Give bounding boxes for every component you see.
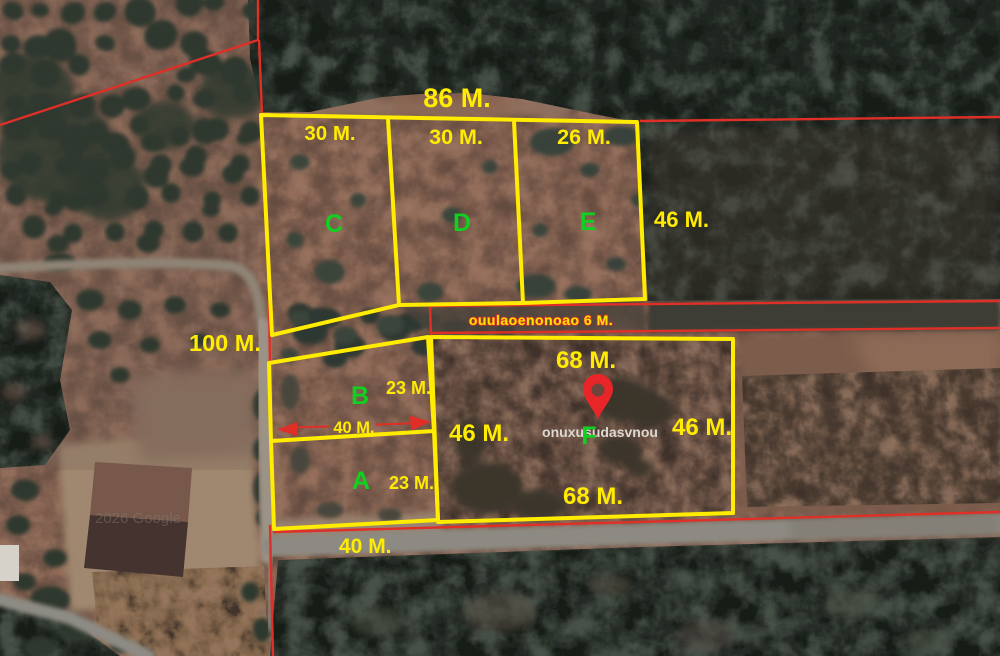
svg-text:30 M.: 30 M.: [304, 122, 355, 145]
svg-text:E: E: [580, 208, 597, 236]
svg-text:23 M.: 23 M.: [386, 378, 431, 398]
svg-text:46 M.: 46 M.: [672, 414, 732, 441]
svg-text:68 M.: 68 M.: [556, 347, 616, 374]
svg-text:46 M.: 46 M.: [654, 207, 709, 232]
svg-text:ouulaoenonoao 6 M.: ouulaoenonoao 6 M.: [469, 312, 613, 328]
svg-text:86 M.: 86 M.: [423, 83, 491, 113]
svg-text:C: C: [325, 210, 343, 238]
svg-text:26 M.: 26 M.: [557, 125, 611, 149]
svg-text:23 M.: 23 M.: [389, 473, 434, 493]
svg-text:100 M.: 100 M.: [189, 330, 261, 356]
svg-text:A: A: [352, 467, 370, 495]
svg-text:B: B: [351, 382, 369, 410]
svg-text:68 M.: 68 M.: [563, 483, 623, 510]
svg-text:2026 Google: 2026 Google: [95, 510, 181, 527]
svg-text:onuxusudasvnou: onuxusudasvnou: [542, 424, 658, 440]
svg-text:D: D: [453, 209, 471, 237]
svg-text:30 M.: 30 M.: [429, 125, 483, 149]
svg-text:46 M.: 46 M.: [449, 420, 509, 447]
svg-text:F: F: [581, 422, 596, 450]
svg-text:40 M.: 40 M.: [339, 535, 392, 558]
